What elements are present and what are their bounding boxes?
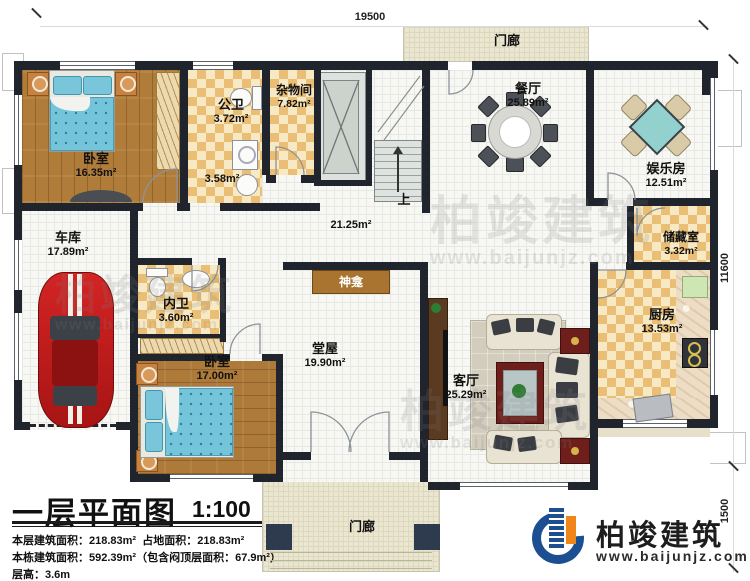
room-label-bedroom1: 卧室16.35m² [40, 152, 152, 180]
shrine-label: 神龛 [313, 271, 389, 293]
room-label-entertainment: 娱乐房12.51m² [618, 162, 714, 190]
room-label-storage: 储藏室3.32m² [638, 231, 724, 257]
room-label-bedroom2: 卧室17.00m² [168, 355, 266, 383]
porch-bottom-label: 门廊 [330, 520, 394, 535]
room-label-dining: 餐厅25.89m² [478, 82, 578, 110]
stairs-up-label: 上 [394, 193, 414, 208]
porch-top-label: 门廊 [475, 34, 539, 49]
stairs-arrow [397, 150, 399, 192]
room-label-living: 客厅25.29m² [418, 374, 514, 402]
room-label-kitchen: 厨房13.53m² [616, 308, 708, 336]
room-label-zawujian: 杂物间7.82m² [250, 84, 338, 110]
floor-plan-page: 19500 11600 1500 门廊 门廊 [0, 0, 750, 581]
room-label-tangwu: 堂屋19.90m² [276, 342, 374, 370]
stairs-arrow-head [393, 146, 403, 154]
room-label-neiwei: 内卫3.60m² [132, 297, 220, 325]
shrine-cabinet: 神龛 [312, 270, 390, 294]
dimension-right-lower: 1500 [719, 486, 731, 536]
watermark: 柏竣建筑 www.baijunjz.com [430, 196, 654, 268]
room-label-area358: 3.58m² [186, 173, 258, 186]
dimension-top: 19500 [338, 11, 402, 23]
room-label-garage: 车库17.89m² [20, 231, 116, 259]
room-label-hall-area: 21.25m² [312, 219, 390, 232]
